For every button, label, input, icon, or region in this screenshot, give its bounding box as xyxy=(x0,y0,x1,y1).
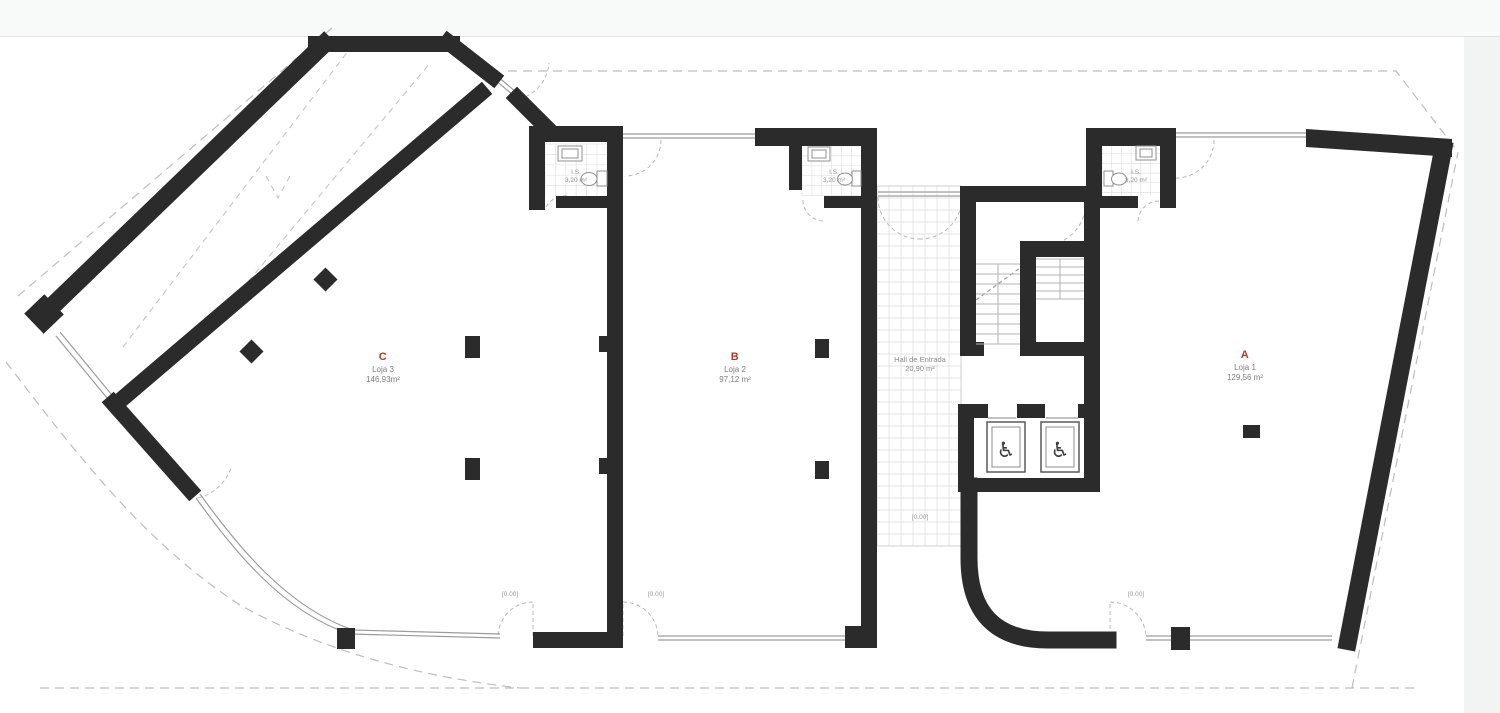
wheelchair-icon: ♿ xyxy=(1051,439,1070,462)
wheelchair-icon: ♿ xyxy=(997,439,1016,462)
floor-plan-page: { "colors":{ "wall":"#2b2b2b", "accent":… xyxy=(0,0,1500,713)
structural-columns xyxy=(239,267,1260,650)
property-boundary-dashed xyxy=(6,28,1458,688)
elevators: ♿ ♿ xyxy=(987,422,1079,472)
floor-plan-drawing: ♿ ♿ xyxy=(0,0,1500,713)
